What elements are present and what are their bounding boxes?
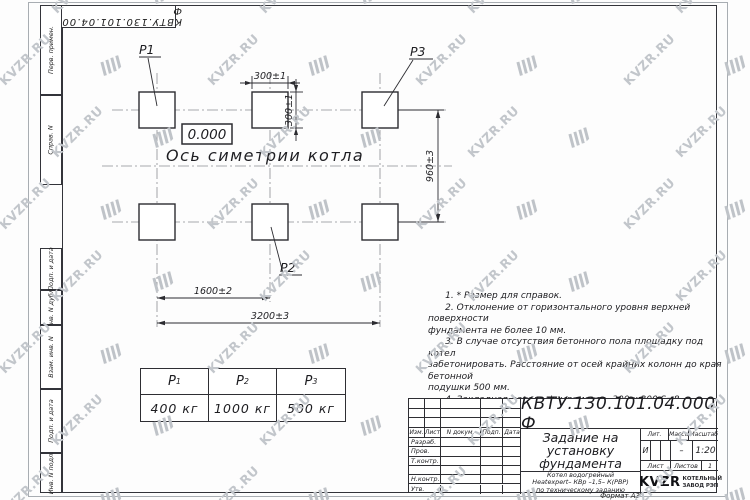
margin-stamp-vzam-inv: Взам. инв. N (40, 325, 62, 389)
sheet-row: Лист Листов 1 (641, 461, 718, 471)
sig-row-prov: Пров. (409, 447, 521, 456)
margin-stamp-perv-primen: Перв. примен. (40, 5, 62, 95)
symmetry-axis-label: Ось симетрии котла (166, 146, 364, 165)
lit-mass-scale-header: Лит. Масса Масштаб (641, 429, 718, 441)
loads-value-p2: 1000 кг (209, 395, 277, 421)
margin-stamp-inv-podl: Инв. N подл. (40, 453, 62, 493)
dim-300-vertical: 300±1 (284, 94, 295, 126)
pad-top-middle (252, 92, 288, 128)
company-logo: KVZR КОТЕЛЬНЫЙ ЗАВОД РЭП (641, 471, 718, 494)
loads-table: Р1 Р2 Р3 400 кг 1000 кг 500 кг (140, 368, 346, 422)
sig-row-razrab: Разраб. (409, 438, 521, 447)
format-label: Формат А3 (578, 492, 662, 500)
foundation-plan: 0.000 Ось симетрии котла Р1 Р3 Р2 300±1 … (62, 5, 462, 355)
kvzr-logo-caption: КОТЕЛЬНЫЙ ЗАВОД РЭП (683, 476, 723, 488)
margin-stamp-podp-data-2: Подп. и дата (40, 389, 62, 453)
doc-title: Задание на установку фундамента (521, 429, 641, 471)
point-label-p1: Р1 (139, 42, 155, 57)
dim-300-horizontal: 300±1 (254, 71, 286, 82)
loads-header-p2: Р2 (209, 369, 277, 395)
revision-header-row: Изм. Лист N докум. Подп. Дата (409, 428, 521, 438)
margin-stamp-inv-dubl: Инв. N дубл. (40, 290, 62, 325)
title-block: Изм. Лист N докум. Подп. Дата Разраб. Пр… (408, 398, 717, 493)
loads-value-p3: 500 кг (277, 395, 345, 421)
dim-960: 960±3 (425, 150, 436, 182)
sheets-count: 1 (702, 461, 718, 471)
point-label-p2: Р2 (280, 260, 296, 275)
kvzr-logo-text: KVZR (639, 475, 681, 490)
lit-value: И (641, 441, 651, 461)
margin-stamp-podp-data-1: Подп. и дата (40, 248, 62, 290)
scale-value: 1:20 (693, 441, 718, 461)
lit-mass-scale-values: И – 1:20 (641, 441, 718, 461)
pad-p2 (252, 204, 288, 240)
mass-value: – (671, 441, 693, 461)
pad-p1 (139, 92, 175, 128)
dim-3200: 3200±3 (251, 311, 289, 322)
title-block-signatures: Изм. Лист N докум. Подп. Дата Разраб. Пр… (409, 399, 521, 494)
loads-header-p1: Р1 (141, 369, 209, 395)
loads-header-p3: Р3 (277, 369, 345, 395)
margin-stamp-sprav-n: Справ. N (40, 95, 62, 185)
loads-value-p1: 400 кг (141, 395, 209, 421)
point-label-p3: Р3 (410, 44, 426, 59)
sig-row-utv: Утв. (409, 485, 521, 495)
pad-bottom-left (139, 204, 175, 240)
pad-p3 (362, 92, 398, 128)
dim-1600: 1600±2 (194, 286, 232, 297)
pad-bottom-right (362, 204, 398, 240)
doc-subject: Котел водогрейный Heatexpert– КВр –1,5– … (521, 471, 641, 494)
revision-grid (409, 399, 521, 428)
doc-number: КВТУ.130.101.04.000 Ф (521, 399, 718, 429)
sig-row-nkontr: Н.контр. (409, 475, 521, 484)
sig-row-tkontr: Т.контр. (409, 457, 521, 466)
sig-row-empty (409, 466, 521, 475)
elevation-value: 0.000 (188, 127, 227, 143)
